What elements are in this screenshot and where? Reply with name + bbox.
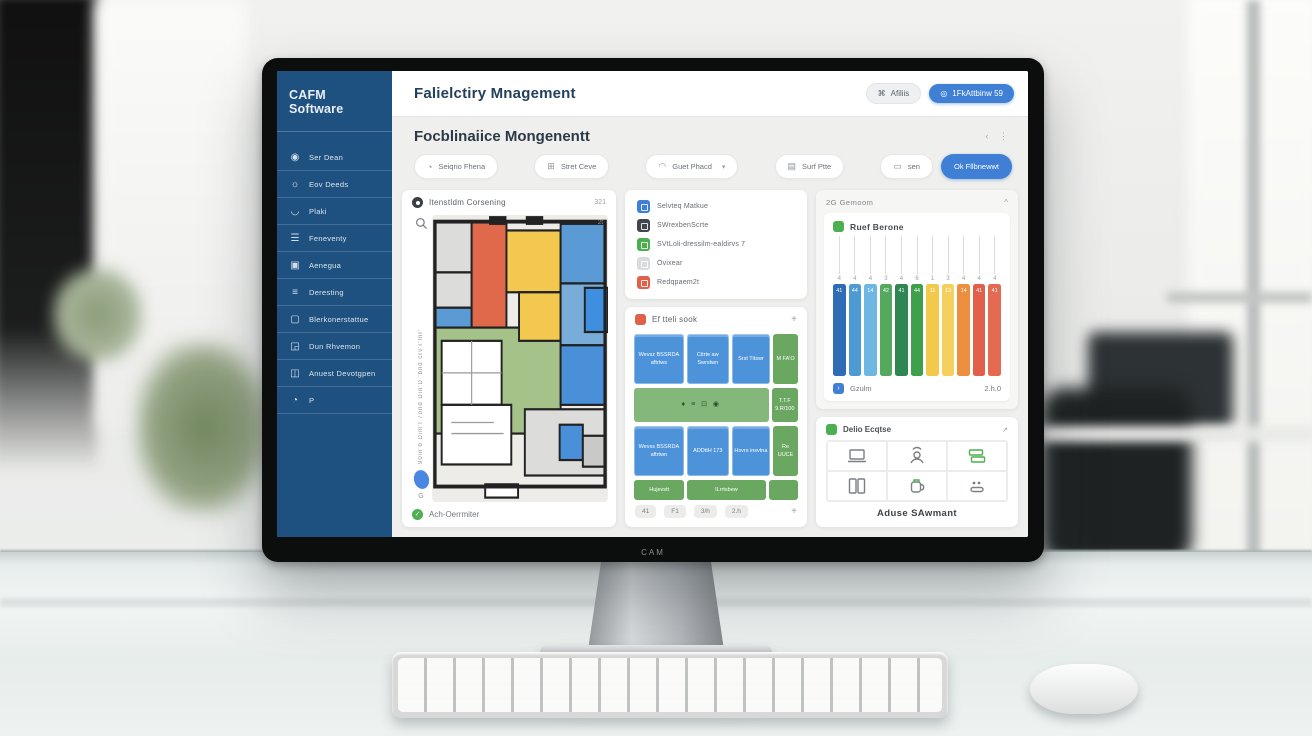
pager-add-button[interactable]: + xyxy=(791,506,797,517)
stacked-boxes-tile[interactable] xyxy=(947,441,1007,471)
floorplan-corner-label: 2t xyxy=(598,219,603,226)
sidebar-item-7[interactable]: ▢Blerkonerstattue xyxy=(277,306,392,333)
legend-item-label: SVtLoli-dressilm-ealdirvs 7 xyxy=(657,241,745,248)
schedule-cell[interactable]: M FA'O xyxy=(773,334,798,384)
kettle-tile[interactable] xyxy=(887,471,947,501)
stacked-boxes-icon xyxy=(965,444,989,468)
tick-gridline xyxy=(901,236,902,274)
legend-item-label: Ovixear xyxy=(657,260,683,267)
background-dark-doorway xyxy=(0,0,97,472)
sidebar-item-9[interactable]: ◫Anuest Devotgpen xyxy=(277,360,392,387)
legend-color-swatch xyxy=(637,200,650,213)
document-icon: ▤ xyxy=(788,161,797,172)
sidebar-item-label: Ser Dean xyxy=(309,153,343,162)
chart-panel: Ruef Berone 44434613444 4144144241441113… xyxy=(824,213,1010,401)
sidebar-item-2[interactable]: ☼Eov Deeds xyxy=(277,171,392,198)
floorplan-svg xyxy=(432,215,608,502)
toolbar-action-button[interactable]: Ok Fllbnewwt xyxy=(941,154,1012,179)
chart-card: 2G Gemoom ^ Ruef Berone 44434613444 4144… xyxy=(816,190,1018,409)
panel-icon: ▣ xyxy=(289,260,301,271)
middle-column: Selvteq MatkueSWrexbenScrteSVtLoli-dress… xyxy=(625,190,807,527)
sidebar-item-5[interactable]: ▣Aenegua xyxy=(277,252,392,279)
sidebar-item-label: Feneventy xyxy=(309,234,347,243)
pin-icon: ◎ xyxy=(940,89,947,98)
window-frame-vertical xyxy=(1247,0,1260,640)
floorplan-card-title: Itenstldm Corsening xyxy=(429,198,588,207)
topbar: Falielctiry Mnagement ⌘ Afiliis ◎ 1FkAtt… xyxy=(392,71,1028,117)
legend-item-5: Redqpaem2t xyxy=(637,276,795,289)
tick-label: 6 xyxy=(915,276,918,282)
chart-tick: 4 xyxy=(895,236,908,282)
legend-item-label: Selvteq Matkue xyxy=(657,203,708,210)
floorplan-badge: 321 xyxy=(594,199,606,206)
pager-pill-3[interactable]: 3/h xyxy=(694,505,717,518)
page-subheader: Focblinaiice Mongenentt ‹ ⋮ ◔Seiqrio Fhe… xyxy=(392,117,1028,188)
floorplan-side-strip: 90in'b Dim'l 7ond Din'D 'bnd crv'r'lnr' … xyxy=(410,215,432,502)
tick-label: 4 xyxy=(978,276,981,282)
chart-title: Ruef Berone xyxy=(850,222,904,232)
tick-label: 3 xyxy=(884,276,887,282)
floorplan-column: Itenstldm Corsening 321 90in'b Dim'l 7o xyxy=(402,190,616,527)
sidebar-item-1[interactable]: ◉Ser Dean xyxy=(277,144,392,171)
filter-row: ◔Seiqrio Fhena⊞Stret Ceve◠Guet Phacd▾▤Su… xyxy=(414,154,933,179)
legend-item-3: SVtLoli-dressilm-ealdirvs 7 xyxy=(637,238,795,251)
filter-pill-4[interactable]: ▤Surf Ptte xyxy=(775,154,845,179)
chart-bar: 41 xyxy=(833,284,846,376)
square-icon: ▢ xyxy=(289,314,301,325)
schedule-card-title: Ef tteli sook xyxy=(652,315,785,324)
filter-pill-1[interactable]: ◔Seiqrio Fhena xyxy=(414,154,498,179)
floorplan-canvas[interactable]: 2t xyxy=(432,215,608,502)
image-icon: ◲ xyxy=(289,341,301,352)
pager-pill-4[interactable]: 2.h xyxy=(725,505,748,518)
chart-bar: 11 xyxy=(926,284,939,376)
legend-item-2: SWrexbenScrte xyxy=(637,219,795,232)
chart-tick: 4 xyxy=(973,236,986,282)
schedule-cell[interactable]: ♦ ≡ ⊡ ◉ xyxy=(634,388,769,422)
chart-bar: 14 xyxy=(957,284,970,376)
collapse-icon[interactable]: ^ xyxy=(1004,198,1008,207)
chart-tick: 4 xyxy=(864,236,877,282)
office-chair xyxy=(1042,388,1192,563)
schedule-cell[interactable]: Wevsz BSSRDA aftrtws xyxy=(634,334,684,384)
assets-icon xyxy=(826,424,837,435)
primary-header-button-label: 1FkAttbinw 59 xyxy=(952,89,1003,98)
sun-icon: ☼ xyxy=(289,179,301,190)
assets-card: Delio Ecqtse ↗ Aduse SAwmant xyxy=(816,417,1018,527)
curve-icon: ◡ xyxy=(289,206,301,217)
legend-item-label: SWrexbenScrte xyxy=(657,222,709,229)
chart-tick: 3 xyxy=(942,236,955,282)
filter-pill-2[interactable]: ⊞Stret Ceve xyxy=(534,154,609,179)
chart-tick: 4 xyxy=(849,236,862,282)
sidebar-item-label: Eov Deeds xyxy=(309,180,348,189)
cloud-person-tile[interactable] xyxy=(887,441,947,471)
schedule-cell[interactable] xyxy=(769,480,798,500)
sidebar-item-10[interactable]: ◔P xyxy=(277,387,392,414)
chart-group-title: 2G Gemoom xyxy=(826,198,1004,207)
sidebar-item-label: Anuest Devotgpen xyxy=(309,369,376,378)
pagination-arrows[interactable]: ‹ ⋮ xyxy=(986,131,1013,142)
tick-label: 4 xyxy=(869,276,872,282)
schedule-cell[interactable]: ADDttH 173 xyxy=(687,426,729,476)
filter-label: sen xyxy=(908,162,920,171)
chart-bar: 44 xyxy=(849,284,862,376)
sidebar-item-label: Dun Rhvemon xyxy=(309,342,360,351)
chart-tick: 4 xyxy=(957,236,970,282)
schedule-add-button[interactable]: + xyxy=(791,314,797,325)
chart-bar: 41 xyxy=(988,284,1001,376)
legend-color-swatch xyxy=(637,238,650,251)
chart-footer-label: Gzulm xyxy=(850,384,978,393)
schedule-cell[interactable]: Wevss BSSRDA aftrtwn xyxy=(634,426,684,476)
tick-gridline xyxy=(854,236,855,274)
tick-label: 4 xyxy=(853,276,856,282)
schedule-grid: Wevsz BSSRDA aftrtwsCitrte aw SwrstwnSrs… xyxy=(625,332,807,499)
page-title: Falielctiry Mnagement xyxy=(414,85,866,102)
legend-color-swatch xyxy=(637,219,650,232)
check-icon: ✓ xyxy=(412,509,423,520)
laptop-tile[interactable] xyxy=(827,441,887,471)
primary-header-button[interactable]: ◎ 1FkAttbinw 59 xyxy=(929,84,1014,103)
filter-label: Stret Ceve xyxy=(561,162,596,171)
tick-gridline xyxy=(932,236,933,274)
window-frame-horizontal xyxy=(1167,292,1312,303)
chart-ticks: 44434613444 xyxy=(833,236,1001,282)
section-heading: Focblinaiice Mongenentt xyxy=(414,128,986,145)
cloud-icon: ◠ xyxy=(658,161,666,172)
filter-pill-5[interactable]: ▭sen xyxy=(880,154,933,179)
tick-gridline xyxy=(917,236,918,274)
chart-title-icon xyxy=(833,221,844,232)
expand-icon[interactable]: ↗ xyxy=(1002,426,1008,434)
legend-card: Selvteq MatkueSWrexbenScrteSVtLoli-dress… xyxy=(625,190,807,299)
schedule-row-1: Wevsz BSSRDA aftrtwsCitrte aw SwrstwnSrs… xyxy=(634,334,798,384)
binder-tile[interactable] xyxy=(827,471,887,501)
plant xyxy=(135,340,270,515)
location-pin-icon[interactable] xyxy=(411,468,430,490)
sidebar-item-6[interactable]: ≡Deresting xyxy=(277,279,392,306)
chart-tick: 1 xyxy=(926,236,939,282)
assets-caption: Aduse SAwmant xyxy=(826,508,1008,519)
app-logo: CAFM Software xyxy=(277,71,392,132)
floorplan-axis-label: 90in'b Dim'l 7ond Din'D 'bnd crv'r'lnr' xyxy=(418,236,424,464)
keyboard-keys xyxy=(398,658,942,712)
office-scene: CAFM Software ◉Ser Dean☼Eov Deeds◡Plaki☰… xyxy=(0,0,1312,736)
chart-footer-icon: › xyxy=(833,383,844,394)
legend-item-4: Ovixear xyxy=(637,257,795,270)
tick-gridline xyxy=(994,236,995,274)
tick-gridline xyxy=(870,236,871,274)
display-icon: ▭ xyxy=(893,161,902,172)
tick-gridline xyxy=(948,236,949,274)
floorplan-icon xyxy=(412,197,423,208)
mouse xyxy=(1030,664,1138,714)
monitor-brand-label: CAM xyxy=(262,548,1044,557)
monitor: CAFM Software ◉Ser Dean☼Eov Deeds◡Plaki☰… xyxy=(262,58,1044,562)
monitor-stand-neck xyxy=(588,558,724,650)
chart-tick: 4 xyxy=(833,236,846,282)
schedule-row-4: HujevsttILrrtsbew xyxy=(634,480,798,500)
tick-label: 4 xyxy=(900,276,903,282)
sidebar-item-label: P xyxy=(309,396,314,405)
pager-pill-1[interactable]: 41 xyxy=(635,505,656,518)
schedule-pager: 41F13/h2.h+ xyxy=(625,499,807,527)
secondary-header-button[interactable]: ⌘ Afiliis xyxy=(866,83,922,104)
chart-tick: 3 xyxy=(880,236,893,282)
sidebar: CAFM Software ◉Ser Dean☼Eov Deeds◡Plaki☰… xyxy=(277,71,392,537)
schedule-cell[interactable]: Citrte aw Swrstwn xyxy=(687,334,729,384)
schedule-cell[interactable]: Hujevstt xyxy=(634,480,684,500)
command-icon: ⌘ xyxy=(878,89,886,98)
schedule-cell[interactable]: Hsvrs insvtna xyxy=(732,426,770,476)
dashboard-content: Itenstldm Corsening 321 90in'b Dim'l 7o xyxy=(392,188,1028,537)
chevron-down-icon: ▾ xyxy=(722,163,726,171)
schedule-cell[interactable]: Re UUCE xyxy=(773,426,798,476)
chart-bar: 44 xyxy=(911,284,924,376)
cloud-person-icon xyxy=(905,444,929,468)
secondary-header-button-label: Afiliis xyxy=(891,89,910,98)
pager-pill-2[interactable]: F1 xyxy=(664,505,686,518)
schedule-cell[interactable]: T.T.F 9.R/100 xyxy=(772,388,798,422)
main-area: Falielctiry Mnagement ⌘ Afiliis ◎ 1FkAtt… xyxy=(392,71,1028,537)
plant-leaves-upper xyxy=(50,265,145,365)
right-column: 2G Gemoom ^ Ruef Berone 44434613444 4144… xyxy=(816,190,1018,527)
chart-bar: 41 xyxy=(973,284,986,376)
user-circle-icon: ◉ xyxy=(289,152,301,163)
asset-tiles xyxy=(826,440,1008,502)
badge-icon: ◫ xyxy=(289,368,301,379)
chart-footer-value: 2.h.0 xyxy=(984,384,1001,393)
filter-label: Seiqrio Fhena xyxy=(438,162,485,171)
filter-toolbar: ◔Seiqrio Fhena⊞Stret Ceve◠Guet Phacd▾▤Su… xyxy=(414,154,1012,179)
tick-gridline xyxy=(963,236,964,274)
sidebar-item-8[interactable]: ◲Dun Rhvemon xyxy=(277,333,392,360)
tick-label: 4 xyxy=(993,276,996,282)
zoom-loupe-icon[interactable] xyxy=(415,217,428,230)
menu-icon: ≡ xyxy=(289,287,301,298)
laptop-icon xyxy=(845,444,869,468)
chart-bar: 42 xyxy=(880,284,893,376)
filter-pill-3[interactable]: ◠Guet Phacd▾ xyxy=(645,154,738,179)
assets-card-title: Delio Ecqtse xyxy=(843,425,996,434)
schedule-icon xyxy=(635,314,646,325)
legend-color-swatch xyxy=(637,276,650,289)
grid-icon: ⊞ xyxy=(547,161,555,172)
sidebar-item-label: Blerkonerstattue xyxy=(309,315,368,324)
tick-label: 4 xyxy=(838,276,841,282)
tick-label: 3 xyxy=(946,276,949,282)
chart-tick: 4 xyxy=(988,236,1001,282)
sidebar-item-label: Aenegua xyxy=(309,261,341,270)
meter-icon xyxy=(965,474,989,498)
floorplan-footer-label: Ach-Oerrmiter xyxy=(429,510,479,519)
power-icon: ◔ xyxy=(289,395,301,406)
filter-label: Surf Ptte xyxy=(802,162,831,171)
meter-tile[interactable] xyxy=(947,471,1007,501)
chart-bar: 14 xyxy=(864,284,877,376)
legend-item-label: Redqpaem2t xyxy=(657,279,699,286)
schedule-row-2: ♦ ≡ ⊡ ◉T.T.F 9.R/100 xyxy=(634,388,798,422)
filter-label: Guet Phacd xyxy=(672,162,712,171)
chart-bars: 4144144241441113144141 xyxy=(833,284,1001,376)
schedule-card: Ef tteli sook + Wevsz BSSRDA aftrtwsCitr… xyxy=(625,307,807,527)
tick-gridline xyxy=(839,236,840,274)
tick-gridline xyxy=(979,236,980,274)
clock-icon: ◔ xyxy=(427,162,432,172)
kettle-icon xyxy=(905,474,929,498)
sidebar-item-label: Plaki xyxy=(309,207,327,216)
sidebar-item-4[interactable]: ☰Feneventy xyxy=(277,225,392,252)
floorplan-card: Itenstldm Corsening 321 90in'b Dim'l 7o xyxy=(402,190,616,527)
keyboard xyxy=(392,652,948,718)
chart-tick: 6 xyxy=(911,236,924,282)
schedule-cell[interactable]: ILrrtsbew xyxy=(687,480,765,500)
schedule-row-3: Wevss BSSRDA aftrtwnADDttH 173Hsvrs insv… xyxy=(634,426,798,476)
legend-item-1: Selvteq Matkue xyxy=(637,200,795,213)
chart-bar: 13 xyxy=(942,284,955,376)
tick-label: 1 xyxy=(931,276,934,282)
floorplan-g-label: G xyxy=(418,493,423,500)
sidebar-menu: ◉Ser Dean☼Eov Deeds◡Plaki☰Feneventy▣Aene… xyxy=(277,132,392,414)
chart-bar: 41 xyxy=(895,284,908,376)
binder-icon xyxy=(845,474,869,498)
sliders-icon: ☰ xyxy=(289,233,301,244)
schedule-cell[interactable]: Srst Titswr xyxy=(732,334,770,384)
sidebar-item-3[interactable]: ◡Plaki xyxy=(277,198,392,225)
legend-color-swatch xyxy=(637,257,650,270)
sidebar-item-label: Deresting xyxy=(309,288,344,297)
tick-gridline xyxy=(885,236,886,274)
tick-label: 4 xyxy=(962,276,965,282)
screen: CAFM Software ◉Ser Dean☼Eov Deeds◡Plaki☰… xyxy=(277,71,1028,537)
